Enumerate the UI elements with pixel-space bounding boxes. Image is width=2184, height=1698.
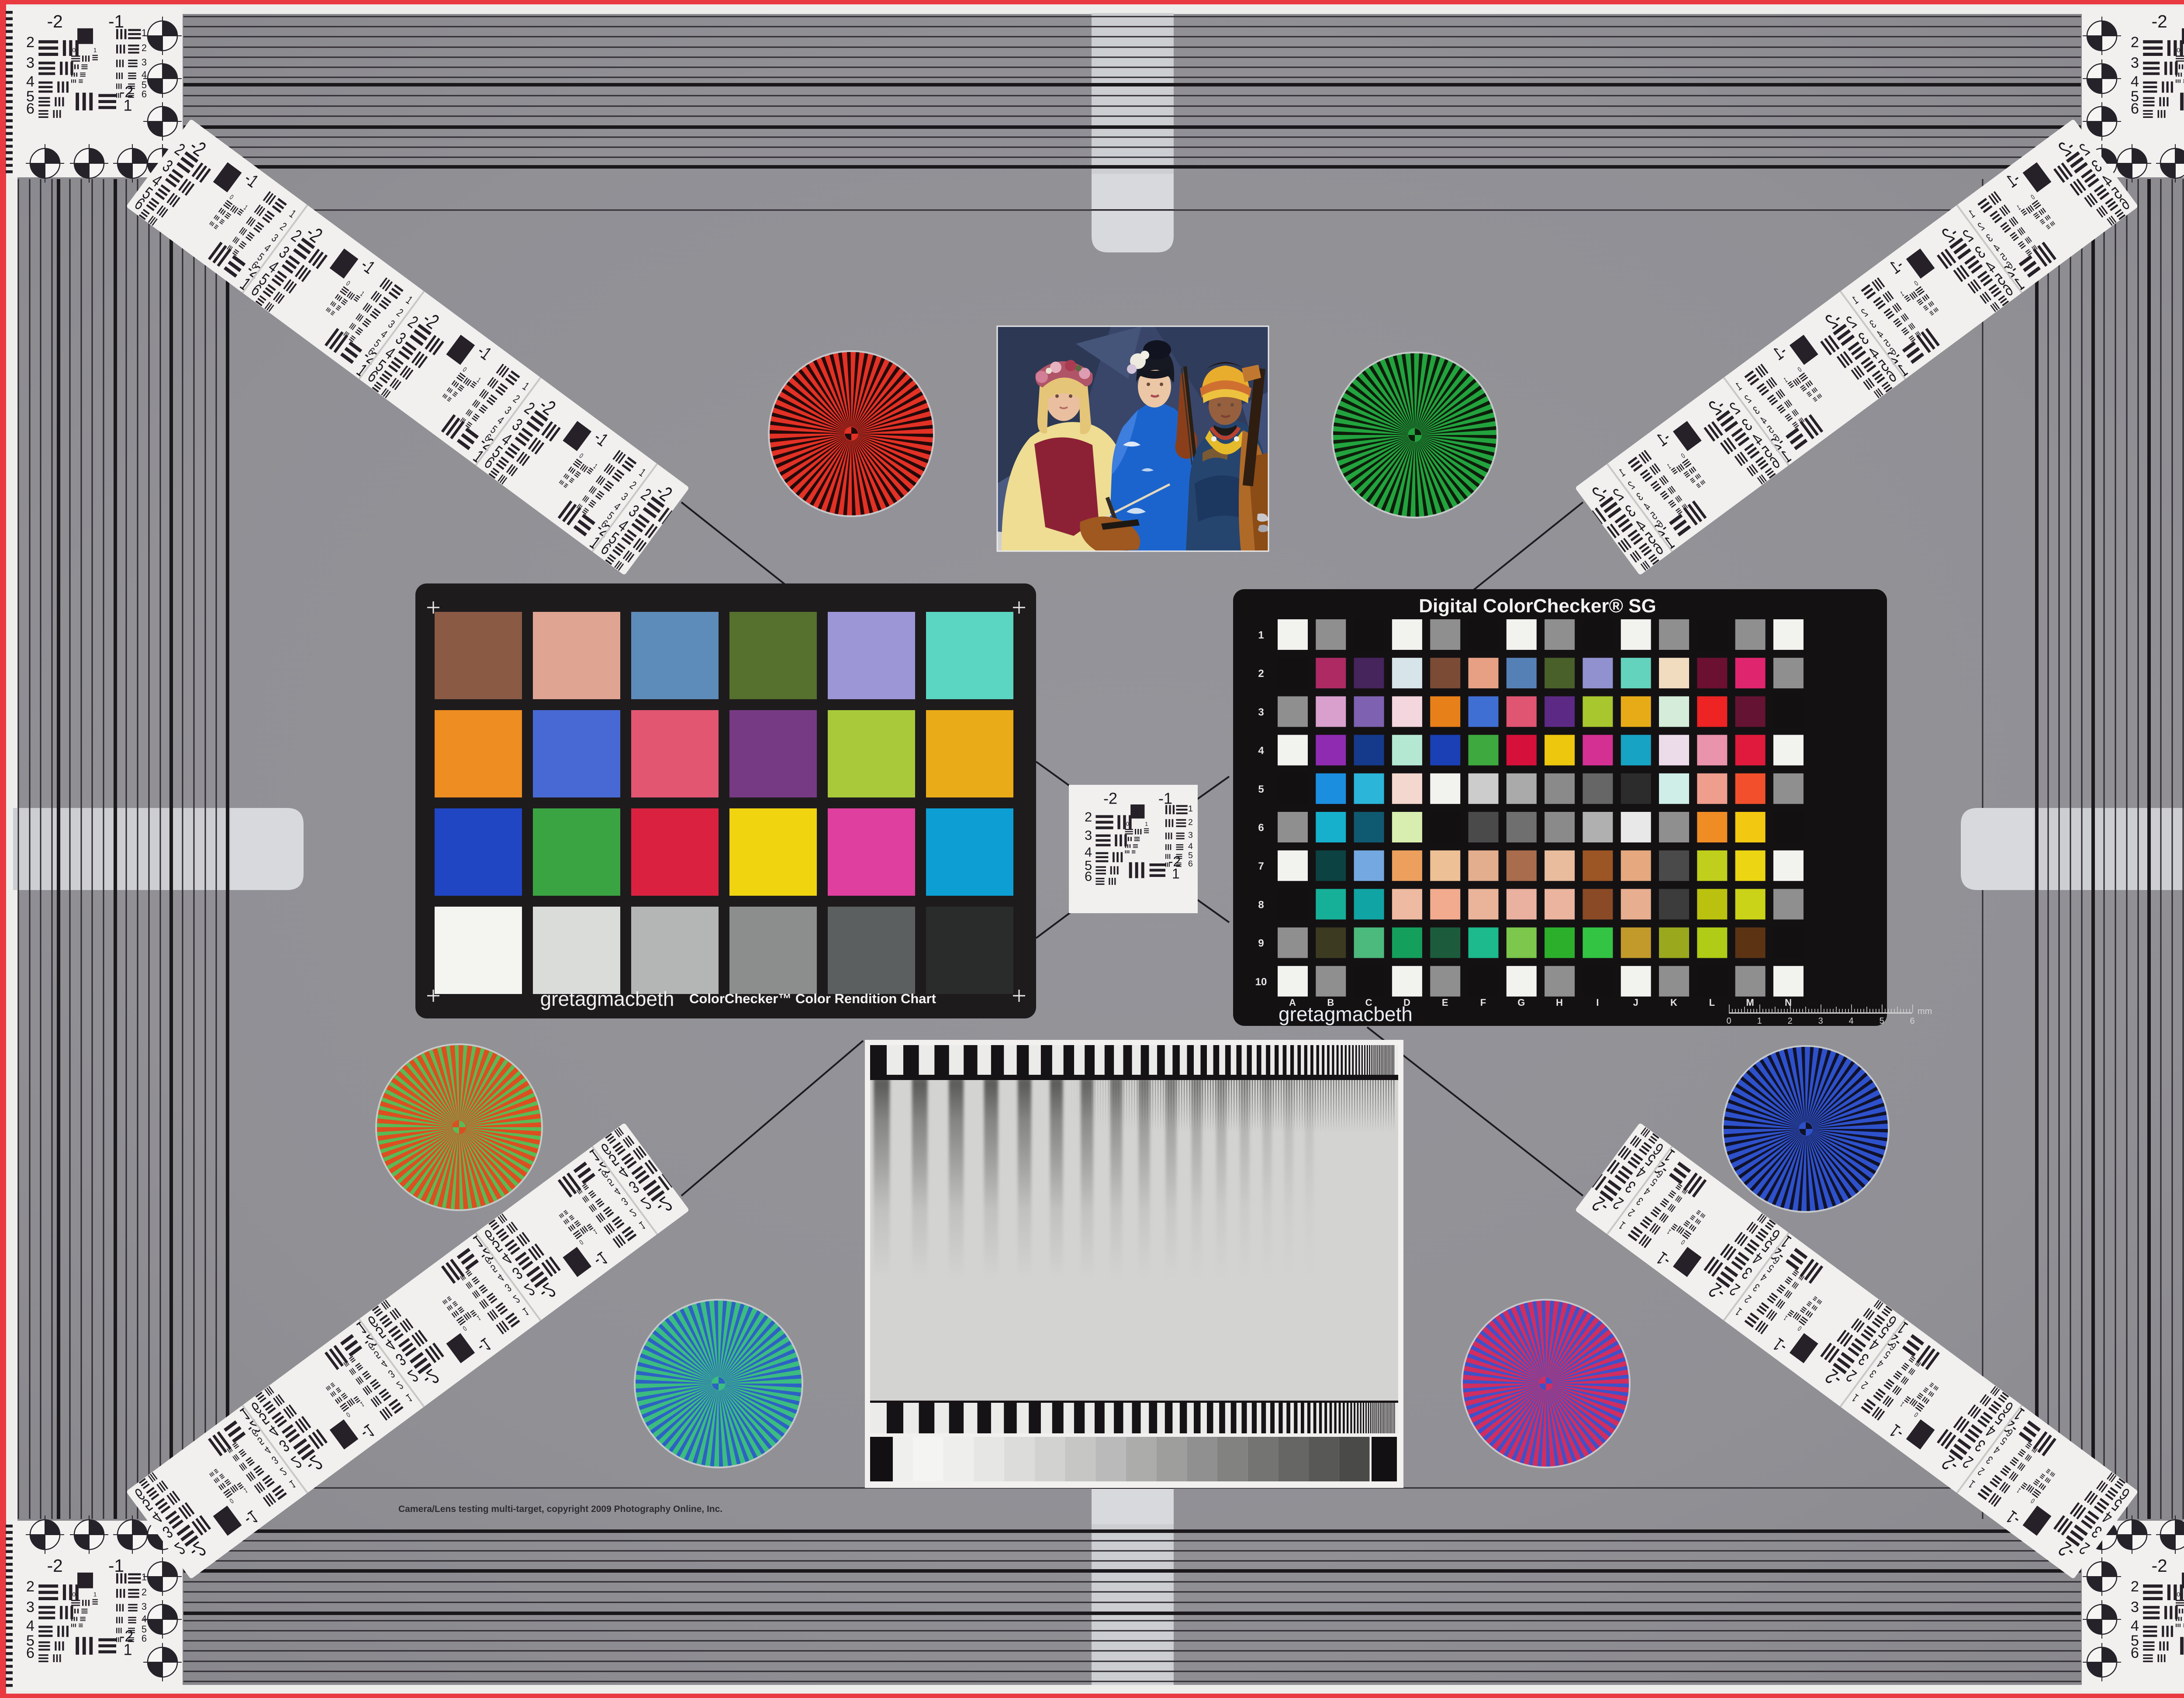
svg-text:1: 1 bbox=[1757, 1016, 1762, 1026]
svg-text:K: K bbox=[1670, 997, 1677, 1008]
svg-text:1: 1 bbox=[124, 1641, 132, 1659]
svg-text:2: 2 bbox=[2131, 1578, 2139, 1595]
svg-text:4: 4 bbox=[1849, 1016, 1853, 1026]
svg-text:1: 1 bbox=[142, 1572, 147, 1583]
svg-text:M: M bbox=[1746, 997, 1754, 1008]
svg-text:-2: -2 bbox=[47, 1556, 63, 1576]
svg-text:4: 4 bbox=[2131, 1618, 2139, 1634]
svg-text:3: 3 bbox=[26, 1599, 35, 1615]
svg-text:1: 1 bbox=[1188, 804, 1193, 814]
svg-text:6: 6 bbox=[2131, 100, 2139, 117]
svg-text:G: G bbox=[1517, 997, 1525, 1008]
svg-text:5: 5 bbox=[1879, 1016, 1884, 1026]
svg-text:-1: -1 bbox=[108, 11, 124, 31]
svg-text:-1: -1 bbox=[108, 1556, 124, 1576]
svg-text:1: 1 bbox=[93, 1591, 97, 1598]
svg-text:2: 2 bbox=[1258, 668, 1264, 680]
svg-text:E: E bbox=[1442, 997, 1448, 1008]
svg-text:6: 6 bbox=[142, 89, 147, 100]
svg-text:4: 4 bbox=[142, 1613, 147, 1624]
svg-text:2: 2 bbox=[2131, 34, 2139, 51]
svg-text:2: 2 bbox=[142, 42, 147, 53]
svg-text:0: 0 bbox=[2177, 1591, 2180, 1598]
svg-text:2: 2 bbox=[1787, 1016, 1792, 1026]
svg-text:2: 2 bbox=[1188, 818, 1193, 827]
svg-text:3: 3 bbox=[2131, 1599, 2139, 1615]
svg-text:L: L bbox=[1709, 997, 1715, 1008]
svg-text:0: 0 bbox=[72, 1591, 76, 1598]
svg-text:7: 7 bbox=[1258, 860, 1264, 872]
svg-text:9: 9 bbox=[1258, 938, 1264, 949]
svg-text:3: 3 bbox=[142, 1601, 147, 1612]
svg-text:10: 10 bbox=[1255, 976, 1267, 988]
svg-text:4: 4 bbox=[1258, 745, 1264, 757]
svg-text:6: 6 bbox=[1258, 822, 1264, 834]
svg-text:4: 4 bbox=[1188, 842, 1193, 851]
svg-text:0: 0 bbox=[2177, 46, 2180, 53]
svg-text:J: J bbox=[1633, 997, 1638, 1008]
svg-text:-1: -1 bbox=[1158, 790, 1172, 808]
svg-text:3: 3 bbox=[1188, 830, 1193, 840]
svg-text:3: 3 bbox=[2131, 55, 2139, 71]
svg-text:4: 4 bbox=[26, 1618, 35, 1634]
svg-text:4: 4 bbox=[26, 73, 35, 90]
svg-text:-2: -2 bbox=[1103, 790, 1117, 808]
svg-text:2: 2 bbox=[26, 34, 35, 51]
svg-text:ColorChecker™ Color Rendition: ColorChecker™ Color Rendition Chart bbox=[689, 991, 936, 1006]
svg-text:2: 2 bbox=[142, 1587, 147, 1598]
svg-text:-2: -2 bbox=[47, 11, 63, 31]
svg-text:mm: mm bbox=[1918, 1007, 1932, 1016]
svg-text:1: 1 bbox=[142, 28, 147, 38]
svg-text:-2: -2 bbox=[2152, 11, 2167, 31]
svg-text:1: 1 bbox=[124, 97, 132, 114]
svg-text:6: 6 bbox=[26, 1645, 35, 1661]
svg-text:2: 2 bbox=[26, 1578, 35, 1595]
svg-text:gretagmacbeth: gretagmacbeth bbox=[540, 987, 674, 1010]
svg-text:1: 1 bbox=[1145, 821, 1148, 827]
svg-text:-2: -2 bbox=[2152, 1556, 2167, 1576]
svg-text:Camera/Lens testing multi-targ: Camera/Lens testing multi-target, copyri… bbox=[398, 1504, 722, 1514]
svg-text:3: 3 bbox=[26, 55, 35, 71]
svg-text:4: 4 bbox=[142, 69, 147, 80]
svg-text:6: 6 bbox=[2131, 1645, 2139, 1661]
svg-text:6: 6 bbox=[1085, 869, 1092, 884]
svg-text:0: 0 bbox=[1126, 821, 1129, 827]
svg-text:gretagmacbeth: gretagmacbeth bbox=[1279, 1003, 1413, 1025]
svg-text:I: I bbox=[1596, 997, 1599, 1008]
svg-text:H: H bbox=[1556, 997, 1563, 1008]
svg-text:5: 5 bbox=[1258, 783, 1264, 795]
svg-text:6: 6 bbox=[142, 1633, 147, 1644]
svg-text:6: 6 bbox=[1910, 1016, 1914, 1026]
svg-text:3: 3 bbox=[1818, 1016, 1823, 1026]
svg-text:1: 1 bbox=[1258, 629, 1264, 641]
svg-text:6: 6 bbox=[1188, 859, 1193, 869]
svg-text:6: 6 bbox=[26, 100, 35, 117]
svg-text:1: 1 bbox=[1172, 866, 1180, 881]
svg-text:0: 0 bbox=[1726, 1016, 1731, 1026]
svg-text:0: 0 bbox=[72, 46, 76, 53]
svg-text:3: 3 bbox=[1258, 706, 1264, 718]
svg-text:4: 4 bbox=[2131, 73, 2139, 90]
svg-text:1: 1 bbox=[93, 46, 97, 53]
svg-text:2: 2 bbox=[1085, 809, 1092, 825]
svg-text:8: 8 bbox=[1258, 899, 1264, 911]
svg-text:Digital ColorChecker® SG: Digital ColorChecker® SG bbox=[1419, 595, 1656, 617]
svg-text:F: F bbox=[1480, 997, 1486, 1008]
svg-text:3: 3 bbox=[142, 57, 147, 68]
svg-text:3: 3 bbox=[1085, 828, 1092, 843]
